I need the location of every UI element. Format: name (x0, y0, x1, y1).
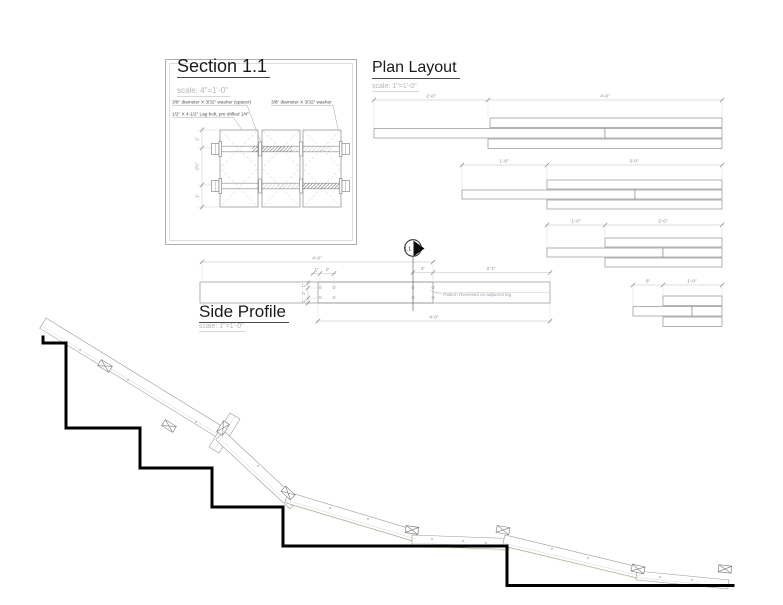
washer (219, 142, 222, 157)
leg-planks (40, 318, 729, 589)
washer (339, 142, 342, 157)
plank (285, 492, 418, 542)
washer (339, 179, 342, 194)
bowtie-icon (718, 565, 732, 573)
plank-row (547, 238, 722, 267)
bowtie-icon (162, 420, 177, 433)
bowtie-icon (405, 526, 419, 535)
dim-label: 2'-1" (487, 266, 496, 271)
section-title: Section 1.1 (177, 57, 270, 78)
dim-label: 4'-0" (600, 94, 610, 100)
plank (216, 431, 298, 509)
dim-label: 6" (646, 279, 651, 285)
leg-assembly (40, 318, 733, 589)
callout-washer: 3/8" diameter X 3/32" washer (271, 100, 332, 105)
plank-row (462, 180, 722, 209)
plan-group-1: 2'-0" 4'-0" (372, 94, 724, 149)
drawing-canvas: 3/8" diameter X 3/32" washer (spacer) 3/… (0, 0, 783, 605)
plan-scale: scale: 1"=1'-0" (372, 83, 419, 92)
section-scale: scale: 4"=1'-0" (177, 87, 230, 97)
section-dimensions: 1" 2½" 1" (194, 127, 221, 210)
bolt-shank-hatch (292, 146, 332, 151)
plank-row (374, 118, 722, 149)
plan-group-4: 6" 1'-0" (631, 279, 724, 327)
plank (503, 535, 644, 579)
dim-label: 2" (301, 291, 306, 295)
bolt-holes (319, 286, 434, 298)
dim-label: 2'-0" (426, 94, 436, 100)
dim-label: 1" (301, 298, 306, 302)
dim-label: 1" (195, 137, 200, 142)
plank-row (633, 296, 722, 327)
section-marker-label: 1.1 (404, 247, 411, 253)
note-text: Pattern Reversed on adjacent leg (443, 292, 512, 297)
stair-profile (43, 337, 733, 586)
spacer-washer (300, 179, 303, 193)
bowtie-icon (496, 525, 510, 534)
dim-label: 1" (315, 267, 319, 272)
bolt-shank-hatch (256, 183, 300, 188)
side-title: Side Profile (199, 303, 289, 323)
section-marker: 1.1 (404, 240, 425, 311)
plank (40, 318, 228, 440)
dim-label: 1" (195, 194, 200, 199)
dim-label: 3'-0" (629, 159, 639, 165)
dim-label: 1'-0" (687, 279, 697, 285)
side-note: Pattern Reversed on adjacent leg (430, 291, 512, 297)
dim-label: 1'-6" (499, 159, 509, 165)
spacer-washer (259, 179, 262, 193)
plank-edge-lines (41, 326, 728, 587)
plan-title: Plan Layout (372, 60, 460, 79)
dim-label: 4'-0" (429, 315, 439, 321)
plan-layout: 2'-0" 4'-0" 1'-6" 3'-0" (372, 94, 724, 327)
dim-label: 2" (326, 267, 330, 272)
callout-washer-spacer: 3/8" diameter X 3/32" washer (spacer) (172, 100, 252, 105)
spacer-washer (259, 142, 262, 156)
dim-label: 1" (301, 283, 306, 287)
section-boards (220, 130, 341, 207)
spacer-washer (300, 142, 303, 156)
bolt-thread-hatch (300, 183, 340, 188)
washer (219, 179, 222, 194)
dim-label: 4'-0" (312, 256, 322, 262)
dim-label: 1'-0" (571, 219, 581, 225)
plan-group-2: 1'-6" 3'-0" (460, 159, 724, 210)
dim-label: 2" (421, 266, 425, 271)
bolt-thread-hatch (252, 146, 292, 151)
callout-lag-bolt: 1/2" X 4-1/2" Lag bolt, pre drilled 1/4" (172, 112, 249, 117)
dim-label: 2½" (194, 162, 200, 170)
dim-label: 2'-0" (658, 219, 668, 225)
side-scale: scale: 1"=1'-0" (199, 323, 246, 332)
plan-group-3: 1'-0" 2'-0" (545, 219, 724, 268)
